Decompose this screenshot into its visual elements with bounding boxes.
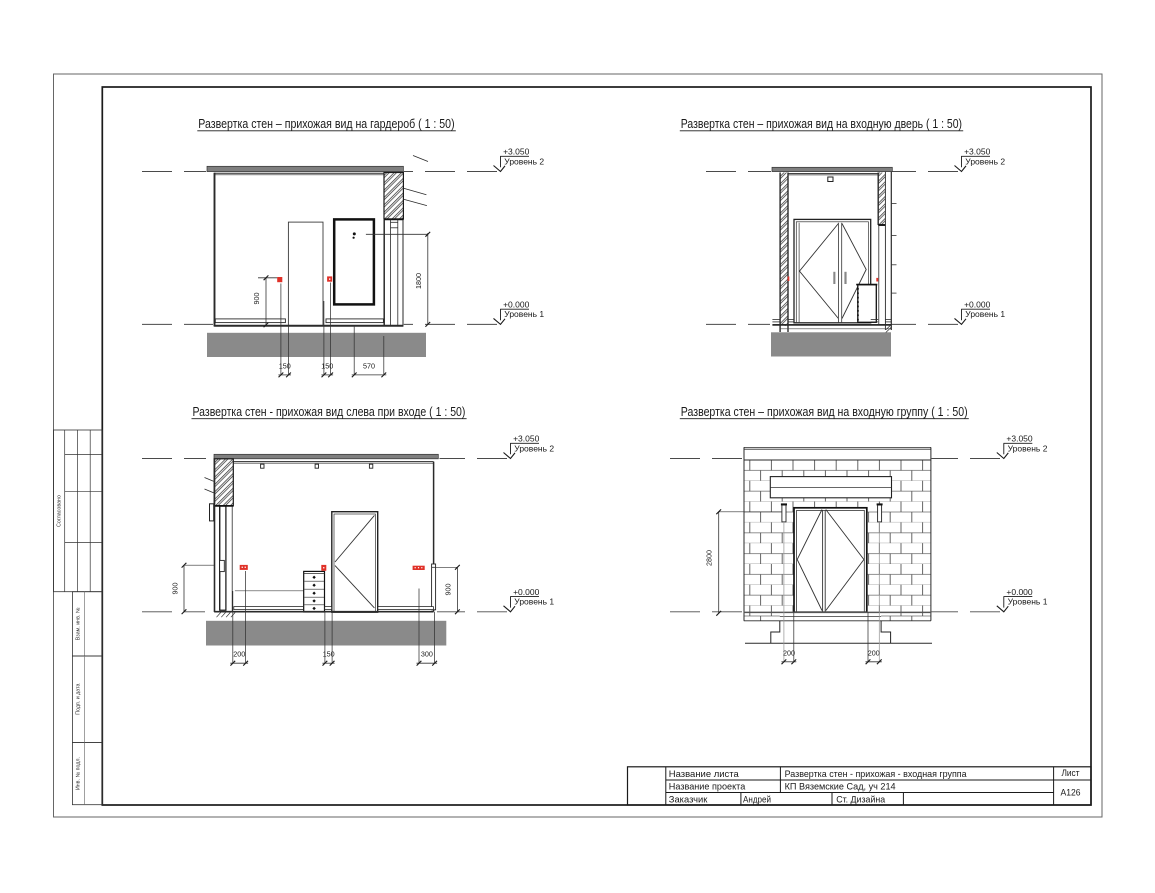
svg-text:900: 900 (252, 293, 261, 305)
svg-text:150: 150 (323, 650, 335, 659)
svg-text:+0.000: +0.000 (513, 587, 540, 597)
svg-text:300: 300 (421, 650, 433, 659)
svg-text:200: 200 (868, 649, 880, 658)
svg-text:Развертка стен - прихожая - вх: Развертка стен - прихожая - входная груп… (785, 769, 968, 780)
svg-text:Уровень 2: Уровень 2 (514, 443, 554, 453)
svg-text:150: 150 (321, 362, 333, 371)
svg-text:Андрей: Андрей (743, 794, 771, 805)
svg-text:Уровень 2: Уровень 2 (965, 156, 1005, 166)
svg-text:Уровень 2: Уровень 2 (504, 156, 544, 166)
svg-text:+3.050: +3.050 (1006, 434, 1033, 444)
svg-text:Подп. и дата: Подп. и дата (76, 684, 82, 715)
svg-text:Уровень 1: Уровень 1 (504, 309, 544, 319)
svg-text:Развертка стен – прихожая вид: Развертка стен – прихожая вид на гардеро… (198, 116, 454, 131)
svg-text:Взам. инв. №: Взам. инв. № (76, 607, 82, 640)
svg-text:+3.050: +3.050 (513, 434, 540, 444)
svg-text:Заказчик: Заказчик (669, 794, 708, 805)
svg-text:Ст. Дизайна: Ст. Дизайна (836, 794, 886, 805)
svg-text:Название проекта: Название проекта (669, 781, 746, 792)
svg-text:1800: 1800 (414, 273, 423, 289)
svg-text:А126: А126 (1061, 787, 1081, 798)
svg-text:КП Вяземские Сад, уч 214: КП Вяземские Сад, уч 214 (785, 781, 897, 792)
svg-text:570: 570 (363, 362, 375, 371)
svg-text:900: 900 (171, 583, 180, 595)
svg-text:+0.000: +0.000 (1006, 587, 1033, 597)
svg-text:+0.000: +0.000 (964, 299, 991, 309)
svg-text:Уровень 2: Уровень 2 (1008, 443, 1048, 453)
svg-text:2800: 2800 (705, 550, 714, 566)
svg-text:+0.000: +0.000 (503, 299, 530, 309)
svg-text:150: 150 (279, 362, 291, 371)
svg-text:200: 200 (783, 649, 795, 658)
svg-text:Название листа: Название листа (669, 769, 740, 780)
svg-text:200: 200 (233, 650, 245, 659)
svg-text:Лист: Лист (1062, 768, 1081, 779)
svg-text:Согласовано: Согласовано (57, 495, 63, 527)
svg-text:+3.050: +3.050 (964, 147, 991, 157)
svg-text:Уровень 1: Уровень 1 (965, 309, 1005, 319)
svg-text:Развертка стен – прихожая вид: Развертка стен – прихожая вид на входную… (681, 404, 968, 419)
svg-text:Уровень 1: Уровень 1 (514, 597, 554, 607)
svg-text:900: 900 (443, 584, 452, 596)
svg-text:+3.050: +3.050 (503, 147, 530, 157)
svg-text:Инв. № подл.: Инв. № подл. (76, 757, 82, 790)
svg-text:Развертка стен – прихожая вид: Развертка стен – прихожая вид на входную… (681, 116, 962, 131)
svg-text:Развертка стен - прихожая вид: Развертка стен - прихожая вид слева при … (193, 404, 466, 419)
svg-text:Уровень 1: Уровень 1 (1008, 597, 1048, 607)
